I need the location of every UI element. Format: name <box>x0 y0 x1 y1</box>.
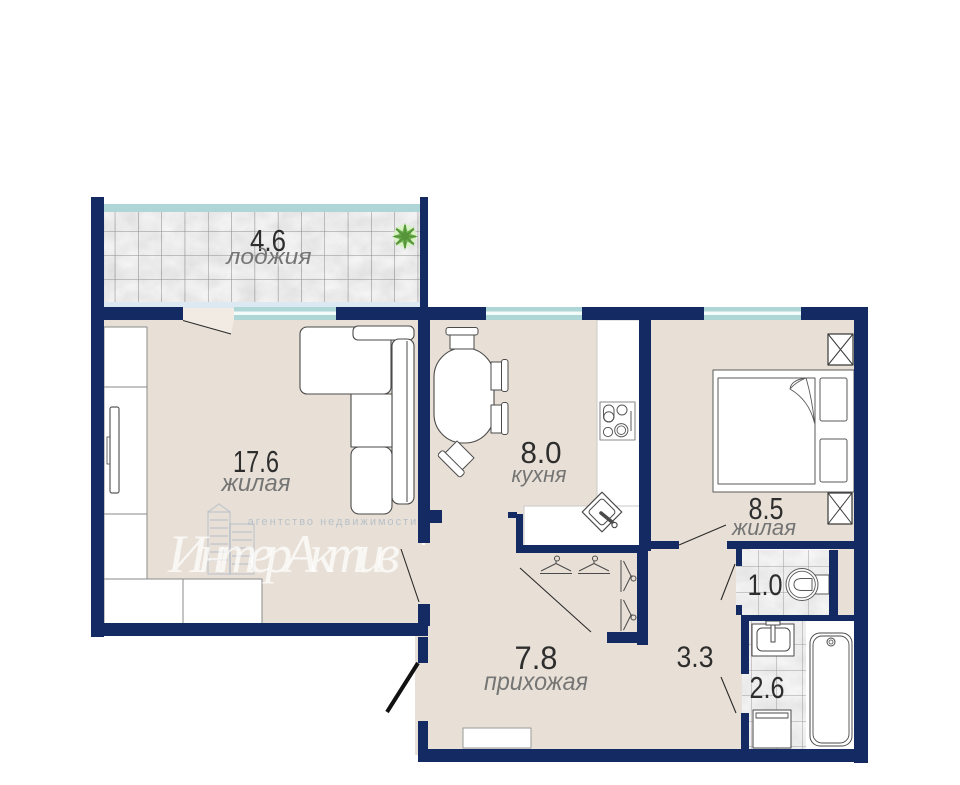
svg-text:1.0: 1.0 <box>748 569 783 602</box>
svg-text:кухня: кухня <box>512 462 567 487</box>
svg-text:лоджия: лоджия <box>224 244 312 269</box>
svg-text:прихожая: прихожая <box>484 668 588 696</box>
svg-text:ИнтерАктив: ИнтерАктив <box>167 524 400 584</box>
svg-text:жилая: жилая <box>221 470 291 497</box>
svg-text:жилая: жилая <box>731 515 796 540</box>
svg-text:3.3: 3.3 <box>677 641 714 674</box>
svg-text:2.6: 2.6 <box>750 670 785 705</box>
